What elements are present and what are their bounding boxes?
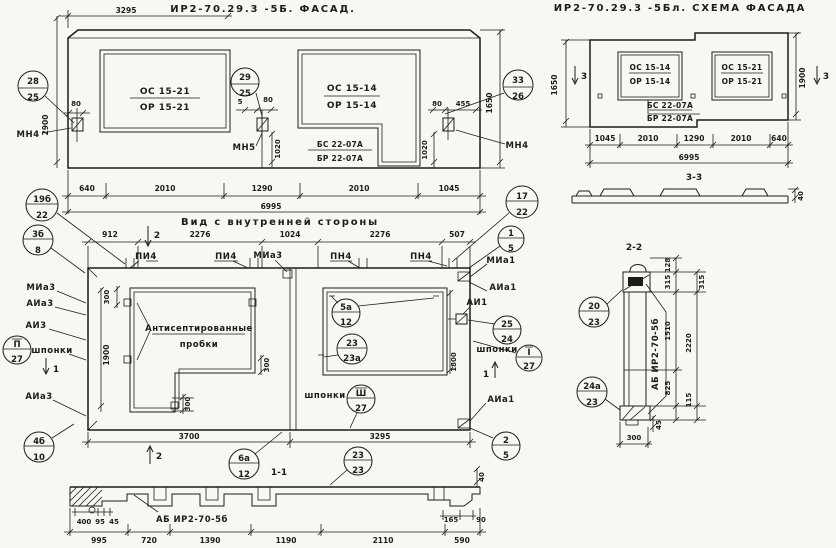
facade-dim-1020a: 1020 [274,139,282,159]
callout-rom3-bottom: 27 [355,404,367,414]
scheme-sill-top: БС 22-07А [647,101,693,110]
callout-roman2-27: П 27 [3,336,31,365]
section33-title: 3-3 [686,173,702,183]
inner-left-labels: МИа3 АИа3 АИ3 П 27 шпонки 1 АИа3 [3,283,86,416]
section22-title: 2-2 [626,243,642,253]
inner-dim-t3: 2276 [370,230,391,239]
facade-dim-1020b: 1020 [421,140,429,160]
callout-5a-top: 5а [340,303,352,313]
section11-dim-400: 400 [77,518,92,526]
callout-24a-top: 24а [583,382,601,392]
section11-bottom-dims: 995 720 1390 1190 2110 590 [64,508,486,545]
label-ai1: АИ1 [466,298,487,308]
facade-sill-top: БС 22-07А [317,140,363,149]
facade-window-left-mark-bottom: ОР 15-21 [140,103,190,113]
inner-section1-right: 1 [483,370,489,380]
callout-3b-top: 3б [32,229,44,240]
callout-20-bottom: 23 [588,318,600,328]
callout-1-bottom: 5 [508,244,514,254]
facade-dim-b2: 1290 [252,184,273,193]
callout-20-top: 20 [588,302,600,312]
facade-dim-top: 3295 [116,6,137,15]
inner-dim-1800: 1800 [450,352,458,372]
inner-dim-t1: 2276 [190,230,211,239]
callout-25-24: 25 24 [468,316,521,345]
section22-dim-128: 128 [664,258,672,273]
scheme-dim-b3: 2010 [731,134,752,143]
scheme-dim-1900: 1900 [798,68,807,89]
callout-rom2-top: П [13,340,20,350]
scheme-section3-left: 3 [581,72,587,82]
callout-3b-bottom: 8 [35,246,41,256]
inner-section2-bottom: 2 [156,452,162,462]
label-ai3: АИ3 [25,321,46,331]
inner-dim-t4: 507 [449,230,465,239]
section-2-2: 2-2 АБ ИР2-70-5б 20 23 24а 23 128 [577,243,706,448]
facade-sill-bottom: БР 22-07А [317,154,363,163]
callout-28-25-top: 28 [27,77,39,87]
scheme-section3-right: 3 [823,72,829,82]
section22-dim-300: 300 [627,434,642,442]
label-pn4-1: ПН4 [330,252,352,262]
section11-dim-90: 90 [476,516,486,524]
callout-28-25-bottom: 25 [27,93,39,103]
inner-window-left: Антисептированные пробки [124,288,256,412]
section22-dim-315a: 315 [664,275,672,290]
section11-dim-1390: 1390 [200,536,221,545]
inner-top-labels: ПИ4 ПИ4 МИа3 ПН4 ПН4 МИа1 [126,251,516,278]
callout-24a-23: 24а 23 [577,377,620,410]
callout-6a-top: 6а [238,454,250,464]
facade-dim-80b: 80 [263,96,273,104]
callout-33-26-bottom: 26 [512,92,524,102]
section33-dim-40: 40 [797,191,805,201]
facade-dim-80a: 80 [71,100,81,108]
scheme-dim-b4: 640 [771,134,787,143]
facade-bottom-dims: 640 2010 1290 2010 1045 6995 [62,170,486,215]
inner-bottom-dims: 3700 3295 2 [82,432,476,464]
inner-dim-300b: 300 [263,358,271,373]
scheme-view: ИР2-70.29.3 -5Бл. СХЕМА ФАСАДА ОС 15-14 … [550,3,829,203]
inner-dim-3700: 3700 [179,432,200,441]
section22-dim-825: 825 [664,381,672,396]
facade-window-right-mark-bottom: ОР 15-14 [327,101,377,111]
scheme-title: ИР2-70.29.3 -5Бл. СХЕМА ФАСАДА [554,3,806,14]
label-aia1-top: АИа1 [489,283,516,293]
callout-17-bottom: 22 [516,208,528,218]
facade-anchor-mid: 5 80 МН5 1020 [233,96,283,168]
label-pi4-2: ПИ4 [215,252,237,262]
scheme-window-left: ОС 15-14 ОР 15-14 [618,52,682,100]
facade-anchor-left-label: МН4 [17,130,40,140]
label-shponki-left: шпонки [31,346,72,356]
label-shponki-mid: шпонки [304,391,345,401]
blueprint-sheet: 3295 ИР2-70.29.3 -5Б. ФАСАД. ОС 15-21 ОР… [0,0,836,548]
callout-25-bottom: 24 [501,335,513,345]
facade-dim-80c: 80 [432,100,442,108]
callout-17-22: 17 22 [452,186,538,262]
callout-23-23a: 23 23а [324,334,367,364]
inner-section1-left: 1 [53,365,59,375]
section22-dim-315b: 315 [698,275,706,290]
inner-section2-top: 2 [154,231,160,241]
scheme-dim-total: 6995 [679,153,700,162]
scheme-window-right: ОС 15-21 ОР 15-21 [712,52,772,100]
callout-rom1-top: I [527,348,530,358]
facade-title: ИР2-70.29.3 -5Б. ФАСАД. [170,4,356,15]
callout-5a-12: 5а 12 [331,296,434,328]
facade-window-left-mark-top: ОС 15-21 [140,87,190,97]
inner-dim-3295: 3295 [370,432,391,441]
callout-4b-bottom: 10 [33,453,45,463]
scheme-dim-1650: 1650 [550,75,559,96]
callout-rom2-bottom: 27 [11,355,23,365]
callout-19b-bottom: 22 [36,211,48,221]
section11-dim-165: 165 [444,516,459,524]
callout-23-top: 23 [352,451,364,461]
callout-33-26-top: 33 [512,76,524,86]
callout-6a-bottom: 12 [238,470,250,480]
note-antiseptic-1: Антисептированные [145,324,253,334]
section22-dim-115: 115 [685,393,693,408]
section11-dim-45: 45 [109,518,119,526]
facade-dim-b0: 640 [79,184,95,193]
scheme-window-right-bottom: ОР 15-21 [722,77,763,86]
facade-dim-b4: 1045 [439,184,460,193]
callout-17-top: 17 [516,192,528,202]
callout-19b-top: 19б [33,194,51,205]
section11-title: 1-1 [271,468,287,478]
callout-rom1-bottom: 27 [523,362,535,372]
section11-dim-720: 720 [141,536,157,545]
label-aia1-bottom: АИа1 [487,395,514,405]
callout-23a-top: 23 [346,339,358,349]
label-pi4-1: ПИ4 [135,252,157,262]
section11-label: АБ ИР2-70-5б [156,514,228,525]
section11-dim-590: 590 [454,536,470,545]
facade-dim-b3: 2010 [349,184,370,193]
scheme-sill-bottom: БР 22-07А [647,114,693,123]
scheme-section-mark-left: 3 [572,66,587,84]
scheme-bottom-dims: 1045 2010 1290 2010 640 6995 [585,122,793,168]
inner-dim-300c: 300 [184,397,192,412]
inner-dim-1900: 1900 [102,345,111,366]
callout-2-bottom: 5 [503,451,509,461]
scheme-dim-b1: 2010 [638,134,659,143]
inner-dim-300a: 300 [103,290,111,305]
facade-anchor-mid-label: МН5 [233,143,256,153]
section22-dim-45: 45 [655,420,663,430]
callout-24a-bottom: 23 [586,398,598,408]
facade-anchor-right-label: МН4 [506,141,529,151]
section-3-3: 3-3 40 [572,173,805,203]
scheme-dim-b0: 1045 [595,134,616,143]
label-aia3-1: АИа3 [26,299,53,309]
inner-title: Вид с внутренней стороны [181,217,379,228]
section22-dim-1510: 1510 [664,321,672,341]
callout-20-23: 20 23 [579,290,622,328]
inner-dim-t0: 912 [102,230,118,239]
facade-sill-mark: БС 22-07А БР 22-07А [308,140,372,163]
section11-dim-40: 40 [478,472,486,482]
callout-23-bottom: 23 [352,466,364,476]
callout-2-top: 2 [503,436,509,446]
section11-dim-995: 995 [91,536,107,545]
label-aia3-2: АИа3 [25,392,52,402]
section22-dim-2220: 2220 [685,333,693,353]
facade-anchor-right: 80 455 1020 МН4 [421,100,529,168]
drawing-svg: 3295 ИР2-70.29.3 -5Б. ФАСАД. ОС 15-21 ОР… [0,0,836,548]
callout-23a-bottom: 23а [343,354,361,364]
inner-view: Вид с внутренней стороны 912 2276 1024 2… [3,186,542,485]
facade-view: 3295 ИР2-70.29.3 -5Б. ФАСАД. ОС 15-21 ОР… [17,4,534,215]
callout-3b-8: 3б 8 [23,225,85,273]
note-antiseptic-2: пробки [180,339,218,350]
callout-1-top: 1 [508,229,514,239]
callout-2-5: 2 5 [470,428,520,461]
facade-dim-2900: 2900 [41,115,50,136]
scheme-window-left-top: ОС 15-14 [630,63,671,72]
facade-window-right-mark-top: ОС 15-14 [327,84,377,94]
inner-dim-t2: 1024 [280,230,301,239]
section11-dim-1190: 1190 [276,536,297,545]
label-shponki-right: шпонки [476,345,517,355]
scheme-section-mark-right: 3 [814,66,829,84]
facade-dim-5: 5 [238,98,243,106]
inner-window-right [318,288,447,375]
facade-dim-1650: 1650 [485,93,494,114]
callout-5a-bottom: 12 [340,318,352,328]
callout-29-25-top: 29 [239,73,251,83]
callout-25-top: 25 [501,320,513,330]
callout-4b-10: 4б 10 [24,424,74,463]
callout-rom3-top: Ш [356,389,367,399]
section22-label: АБ ИР2-70-5б [650,318,661,390]
scheme-dim-b2: 1290 [684,134,705,143]
callout-23-23: 23 23 [330,447,372,485]
section11-dim-95: 95 [95,518,105,526]
section11-dim-2110: 2110 [373,536,394,545]
facade-dim-b1: 2010 [155,184,176,193]
scheme-window-right-top: ОС 15-21 [722,63,763,72]
facade-dim-total: 6995 [261,202,282,211]
callout-roman3-27: Ш 27 [347,385,375,428]
label-pn4-2: ПН4 [410,252,432,262]
callout-4b-top: 4б [33,436,45,447]
facade-anchor-left: 80 МН4 [17,100,91,142]
scheme-window-left-bottom: ОР 15-14 [630,77,671,86]
facade-dim-455: 455 [456,100,471,108]
facade-window-left: ОС 15-21 ОР 15-21 [100,50,230,132]
label-mia3-left: МИа3 [26,283,55,293]
scheme-sill-mark: БС 22-07А БР 22-07А [647,100,700,123]
